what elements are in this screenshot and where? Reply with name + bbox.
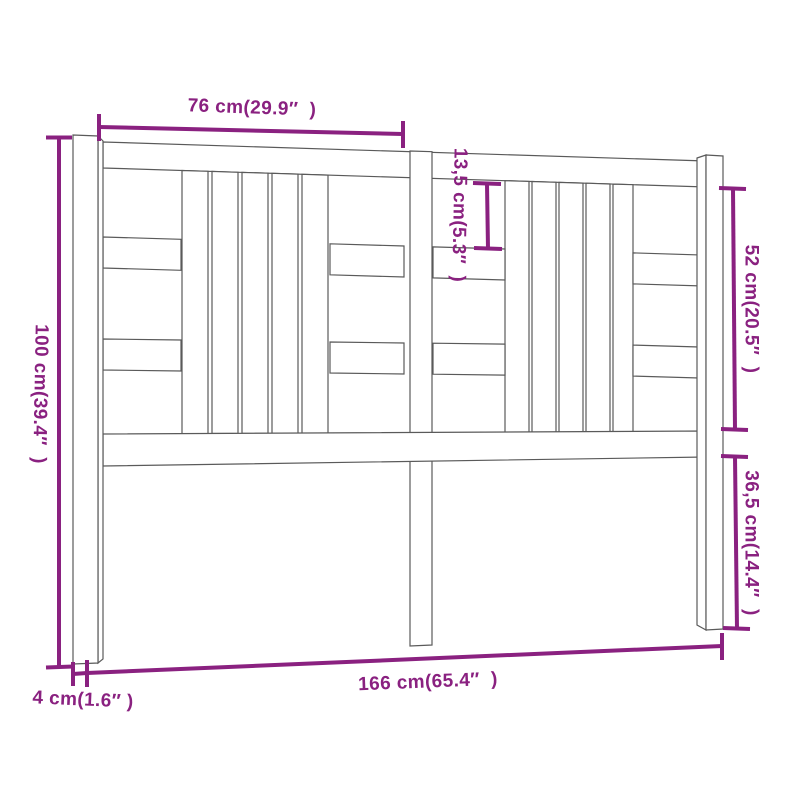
vertical-slats-left [182,171,328,434]
dim-label-leg-thickness: 4 cm(1.6″ ) [32,688,134,711]
headboard-dimension-diagram: 76 cm(29.9″ ) 13,5 cm(5.3″ ) 52 cm(20.5″… [0,0,800,800]
dimension-slat-gap-line [473,183,502,249]
dim-label-total-height: 100 cm(39.4″ ) [29,324,50,464]
right-leg [697,155,723,630]
dim-label-slat-gap: 13,5 cm(5.3″ ) [448,148,469,283]
bottom-rail [103,431,706,466]
dim-label-upper-side-height: 52 cm(20.5″ ) [742,245,761,374]
left-leg [73,135,103,664]
dim-label-lower-side-height: 36,5 cm(14.4″ ) [742,470,761,615]
dimension-leg-thickness-line [73,662,87,686]
dim-label-top-width: 76 cm(29.9″ ) [187,96,316,119]
vertical-slats-right [505,181,633,433]
middle-leg [410,151,432,646]
